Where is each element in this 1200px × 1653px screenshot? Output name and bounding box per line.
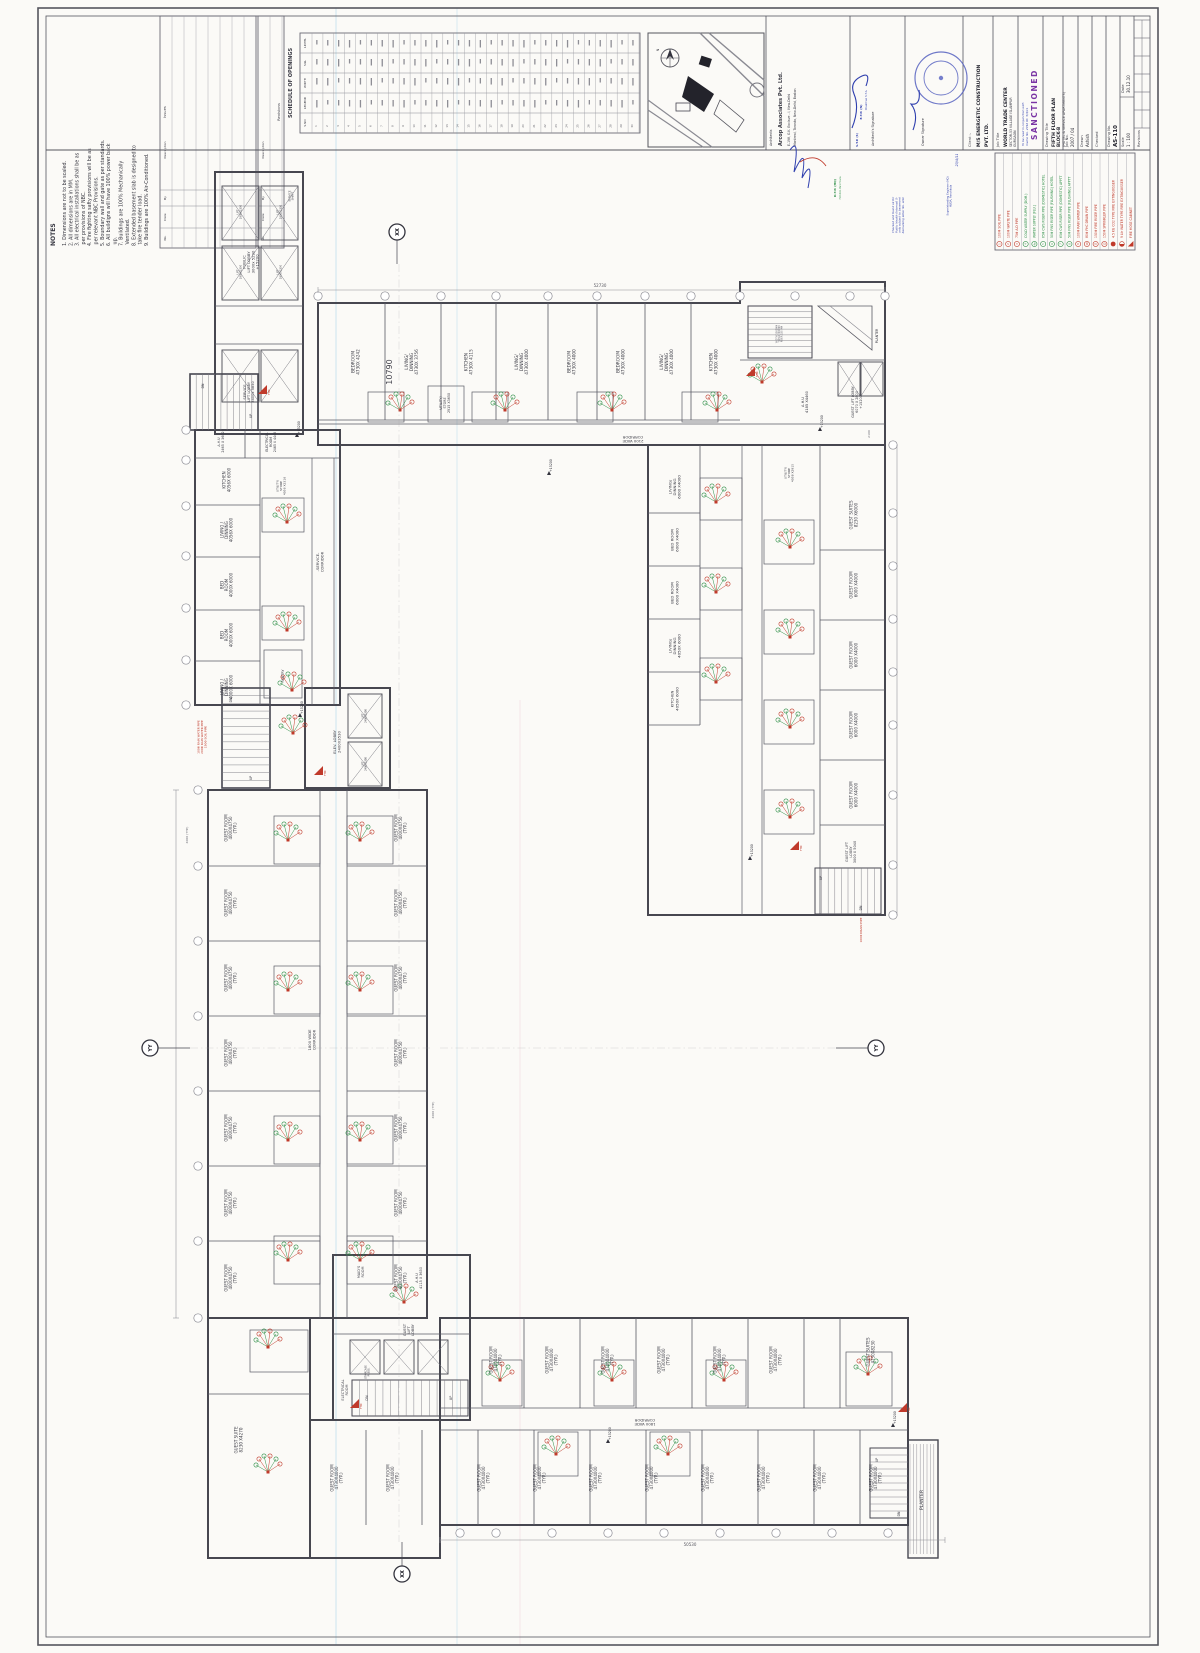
sanctioned-stamp: SANCTIONED [1030, 69, 1039, 140]
schedule-cell-mark [512, 100, 513, 106]
room-label: GUEST SUITES4730X8230 [866, 1337, 876, 1366]
schedule-cell-mark [360, 100, 361, 108]
riser-base [611, 1379, 614, 1382]
room-label: GUEST ROOM4000X4750(TYP.) [393, 1189, 407, 1217]
architects-address: E-198, G.K. Enclave - I, New-Delhi [787, 94, 791, 146]
schedule-cell-mark [534, 100, 535, 108]
grid-bubble [889, 562, 897, 570]
label-line: 6000 X4000 [677, 475, 682, 499]
note-line: Ventilated. [125, 219, 131, 246]
label-line: ROOM [345, 1385, 349, 1396]
schedule-cell-mark [567, 40, 568, 48]
fire-hose-cabinet-icon [1128, 241, 1134, 247]
schedule-cell-mark [632, 40, 633, 46]
note-line: take fire tender load. [138, 194, 144, 246]
schedule-cell-mark [436, 100, 437, 107]
lift-label: LIFT1900X2300 [236, 264, 243, 279]
schedule-cell-mark [371, 40, 372, 46]
label-line: 2465 X 4448 [273, 432, 277, 452]
label-line: 5 [358, 125, 362, 127]
label-line: 18 [499, 124, 503, 128]
riser-line [288, 674, 292, 690]
plumbing-riser-cluster [274, 1122, 302, 1142]
schedule-cell-mark [469, 59, 470, 67]
drawing-title-label: Drawing Title [1045, 122, 1049, 147]
signature-scribble [911, 90, 919, 130]
dimension-text: 52730 [594, 283, 607, 288]
riser-base [292, 732, 295, 735]
label-line: HUDA, Panchkula [949, 184, 953, 207]
schedule-cell-mark [632, 78, 633, 86]
label-line: 52730 [594, 283, 607, 288]
schedule-cell-mark [382, 100, 383, 106]
riser-base [715, 501, 718, 504]
schedule-cell-mark [480, 78, 481, 84]
riser-line [264, 1331, 268, 1347]
riser-base [789, 636, 792, 639]
schedule-cell-mark [600, 40, 601, 47]
riser-line [712, 486, 716, 502]
label-line: 8230 X6000 [853, 502, 858, 527]
section-marker-label: XX [395, 228, 401, 236]
col-header: By [163, 196, 167, 200]
schedule-cell-mark [567, 59, 568, 64]
legend-number: 7 [1060, 243, 1063, 245]
schedule-cell-mark [589, 78, 590, 86]
schedule-row-no: 11 [423, 124, 427, 128]
section-marker-label: XX [400, 1570, 406, 1578]
schedule-cell-mark [512, 40, 513, 47]
schedule-cell-mark [469, 40, 470, 47]
schedule-cell-mark [491, 78, 492, 85]
se-stamp: Superintending Engineer (HQ)HUDA, Panchk… [945, 176, 952, 215]
schedule-cell-mark [382, 59, 383, 67]
riser-line [713, 394, 717, 410]
plumbing-riser-cluster [346, 972, 374, 992]
riser-line [664, 1438, 668, 1454]
room-label: GUEST ROOM4000X4750(TYP.) [223, 1189, 237, 1217]
room-label: LIVING/DINNING4730X 4000 [514, 349, 529, 375]
schedule-cell-mark [480, 40, 481, 48]
label-line: N [656, 48, 660, 51]
bathroom [700, 478, 742, 520]
schedule-row-no: 26 [587, 124, 591, 128]
plumbing-riser-cluster [346, 1122, 374, 1142]
label-line: 4730X 4000 [571, 349, 576, 375]
col-header: No. [163, 235, 167, 240]
schedule-cell-mark [382, 40, 383, 47]
bathroom [682, 392, 718, 422]
label-line: 12 [434, 124, 438, 128]
label-line: DN [859, 905, 863, 910]
label-line: 1900X2300 [278, 264, 282, 279]
label-line: NOTES [50, 223, 57, 246]
schedule-cell-mark [349, 40, 350, 48]
label-line: 2 [1007, 243, 1010, 245]
grid-bubble [456, 1529, 464, 1537]
schedule-cell-mark [611, 40, 612, 48]
client-name-2: PVT. LTD. [984, 123, 990, 147]
label-line: 6000 X4000 [674, 581, 679, 605]
room-label: GUEST ROOM4000X4750(TYP.) [393, 889, 407, 917]
riser-line [356, 974, 360, 990]
label-line: XX [400, 1570, 406, 1578]
stair-direction: DN [859, 905, 863, 910]
legend-text: 100Φ WASTE PIPE [1006, 210, 1010, 238]
label-line: 75Φ A.D PIPE [1015, 218, 1019, 238]
riser-base [555, 1453, 558, 1456]
label-line: 3000 X 5040 [853, 841, 857, 863]
schedule-row-no: 29 [619, 124, 623, 128]
label-line: 5 [1042, 243, 1045, 245]
riser-base [287, 1259, 290, 1262]
schedule-row-no: 17 [488, 124, 492, 128]
building-footprint [682, 76, 714, 112]
schedule-cell-mark [632, 59, 633, 66]
label-line: (TYP.) [598, 1472, 603, 1484]
schedule-cell-mark [414, 78, 415, 86]
road-line [709, 33, 764, 80]
revisions-label: Revisions [1137, 130, 1141, 147]
legend-text: WATER SUPPLY (FLU.) [1033, 205, 1037, 238]
schedule-cell-mark [338, 100, 339, 106]
drawn-label: Drawn [1080, 135, 1084, 147]
room-label: GUEST ROOM4000X4750(TYP.) [393, 1114, 407, 1142]
room-label: LIVING /DINNING4056X 6000 [219, 517, 233, 542]
label-line: UP [875, 1458, 879, 1462]
note-line: 2. All dimensions are in MM. [68, 179, 74, 246]
plumbing-riser-cluster [654, 1436, 682, 1456]
schedule-cell-mark [589, 40, 590, 46]
label-line: 20 [521, 124, 525, 128]
stair-direction: UP [249, 414, 253, 418]
lift-label: LIFT2400X2300 [362, 757, 368, 771]
stair-direction: UP [249, 776, 253, 780]
note-line: 5. Boundary wall and gate as per standar… [100, 140, 106, 246]
label-line: UP [249, 776, 253, 780]
riser-base [761, 381, 764, 384]
room-label: KITCHEN4050X 6000 [670, 687, 680, 711]
label-line: (TYP.) [498, 1354, 503, 1366]
room-label: GUEST ROOM4730X4000(TYP.) [544, 1346, 558, 1374]
stair-direction: UP [819, 876, 823, 880]
label-line: +15200 [608, 1427, 612, 1440]
stair-direction: UP [875, 1458, 879, 1462]
fhc-label: FHC [323, 770, 327, 776]
planter-wedge [818, 306, 872, 350]
legend-text: FIRE HOSE CABINET [1129, 207, 1133, 238]
plumbing-riser-cluster [776, 799, 804, 819]
section-marker-label: YY [874, 1044, 880, 1053]
dimension-text: 4000 (TYP.) [431, 1102, 435, 1119]
label-line: 65Φ CWS RISER PIPE (DOMESTIC) HOTEL [1041, 174, 1045, 238]
schedule-cell-mark [327, 78, 328, 86]
label-line: 4000X 6000 [229, 674, 234, 699]
road-line [648, 110, 703, 147]
riser-line [712, 666, 716, 682]
riser-base [867, 1373, 870, 1376]
schedule-cell-mark [349, 78, 350, 84]
riser-point [254, 1338, 258, 1342]
schedule-cell-mark [578, 100, 579, 108]
label-line: 2 [325, 125, 329, 127]
label-line: Remarking letter No. attd. [901, 197, 905, 234]
grid-bubble [544, 292, 552, 300]
schedule-row-no: 19 [510, 124, 514, 128]
schedule-cell-mark [578, 40, 579, 45]
plumbing-riser-cluster [776, 619, 804, 639]
label-line: +15200 [549, 459, 553, 472]
scale-value: 1 : 100 [1126, 132, 1131, 147]
label-line: +15200 [300, 701, 304, 714]
grid-bubble [182, 456, 190, 464]
room-label: BED ROOM6000 X4000 [670, 581, 680, 605]
schedule-cell-mark [425, 78, 426, 83]
schedule-cell-mark [436, 40, 437, 48]
checked-note: Checked and found ok forPublic Health (I… [891, 196, 905, 233]
etp-stamp: E.T.P. (N) [859, 104, 863, 120]
legend-text: COLD WATER SUPPLY (DOM.) [1024, 194, 1028, 238]
room-label: GUEST ROOM4730X4000(TYP.) [768, 1346, 782, 1374]
room-label: STAIRCASEPRESS. [364, 1365, 371, 1379]
label-line: 4730X 4000 [620, 349, 625, 375]
plumbing-riser-cluster [776, 709, 804, 729]
schedule-cell-mark [578, 59, 579, 65]
grid-bubble [194, 862, 202, 870]
label-line: 4056X 6000 [226, 467, 231, 492]
room-label: GUEST ROOM4730X4000(TYP.) [812, 1464, 826, 1492]
lift-label: LIFT2400X2300 [362, 709, 368, 723]
label-line: 27 [597, 124, 601, 128]
grid-bubble [889, 509, 897, 517]
plumbing-riser-cluster [279, 715, 307, 735]
label-line: (TYP.) [822, 1472, 827, 1484]
label-line: 4185 X4460 [805, 390, 809, 413]
riser-line [786, 531, 790, 547]
schedule-cell-mark [469, 100, 470, 106]
note-line: up. [113, 237, 118, 246]
label-line: 10 [1086, 242, 1089, 246]
key-plan: N [648, 33, 764, 147]
schedule-cell-mark [502, 59, 503, 66]
bathroom [700, 568, 742, 610]
grid-bubble [716, 1529, 724, 1537]
schedule-cell-mark [447, 59, 448, 65]
fire-hose-cabinet-icon [790, 841, 799, 850]
job-no-label: Job No. [1065, 134, 1069, 148]
label-line: 9 Ltr WATER TYPE FIRE EXTINGUISSER [1120, 178, 1124, 238]
schedule-cell-mark [523, 100, 524, 107]
room-label: GUEST ROOM4730X4000(TYP.) [700, 1464, 714, 1492]
label-line: (TYP.) [233, 897, 238, 909]
schedule-cell-mark [338, 59, 339, 67]
riser-base [286, 521, 289, 524]
label-line: H.U.D.A. Panchkula [839, 176, 842, 199]
schedule-cell-mark [458, 40, 459, 46]
lift-shaft-x [418, 1340, 448, 1374]
architects-name: Arcop Associates Pvt. Ltd. [778, 72, 784, 146]
label-line: 4000X 6000 [229, 572, 234, 597]
bathroom [700, 658, 742, 700]
label-line: 4000 (TYP.) [185, 827, 189, 844]
chairman-stamp: Chairman S.T.A. [864, 90, 868, 111]
label-line: (TYP.) [710, 1472, 715, 1484]
schedule-cell-mark [447, 78, 448, 85]
grid-bubble [884, 1529, 892, 1537]
riser-line [552, 1438, 556, 1454]
riser-base [267, 1346, 270, 1349]
room-label: GUEST ROOM4730X4000(TYP.) [488, 1346, 502, 1374]
riser-line [356, 1124, 360, 1140]
schedule-cell-mark [545, 59, 546, 66]
label-line: 22 [543, 124, 547, 128]
label-line: (TYP.) [403, 1122, 408, 1134]
label-line: +15200 [750, 844, 754, 857]
grid-bubble [881, 292, 889, 300]
label-line: 6 [1051, 243, 1054, 245]
label-line: 4056 X3316 [283, 477, 287, 495]
schedule-cell-mark [589, 59, 590, 66]
label-line: (TYP.) [878, 1472, 883, 1484]
schedule-cell-mark [491, 100, 492, 108]
schedule-cell-mark [425, 59, 426, 67]
fhc-label: FHC [907, 1407, 911, 1413]
room-label: KITCHEN4730X 4115 [464, 349, 474, 375]
label-line: (TYP.) [778, 1354, 783, 1366]
label-line: 6 [369, 125, 373, 127]
grid-bubble [194, 1237, 202, 1245]
schedule-row-no: 28 [608, 124, 612, 128]
plumbing-riser-cluster [346, 1242, 374, 1262]
legend-text: 75Φ A.D PIPE [1015, 218, 1019, 238]
grid-bubble [660, 1529, 668, 1537]
label-line: Chairman S.T.A. [864, 90, 868, 111]
planter-hatch [830, 306, 872, 340]
riser-line [284, 1124, 288, 1140]
riser-line [264, 1456, 268, 1472]
lobby-label: GUEST LIFTLOBBY3000 X 5040 [845, 841, 857, 863]
label-line: 2400X2300 [364, 709, 367, 723]
riser-line [396, 394, 400, 410]
grid-bubble [889, 911, 897, 919]
label-line: +15200 [297, 421, 301, 434]
client-name: M/S ENERGETIC CONSTRUCTION [976, 65, 982, 147]
schedule-row-no: 18 [499, 124, 503, 128]
label-line: PLANTER [875, 328, 879, 343]
check-scribble [790, 146, 810, 188]
bathroom [274, 1116, 320, 1164]
legend-number: 6 [1051, 243, 1054, 245]
room-label: GUEST ROOM4730X4000(TYP.) [656, 1346, 670, 1374]
schedule-cell-mark [327, 59, 328, 66]
grid-bubble [381, 292, 389, 300]
grid-bubble [889, 615, 897, 623]
note-line: 7. Buildings are 100% Mechanically [119, 161, 125, 246]
note-line: 1. Dimensions are not to be scaled. [62, 161, 68, 246]
schedule-row-no: 25 [576, 124, 580, 128]
label-line: LINTEL [303, 38, 307, 48]
label-line: WATER SUPPLY (FLU.) [1033, 205, 1037, 238]
scale-label: Scale [1121, 137, 1125, 147]
label-line: 3 [1016, 243, 1019, 245]
room-label: GUEST ROOM4730X4000(TYP.) [868, 1464, 882, 1492]
schedule-cell-mark [393, 78, 394, 84]
riser-base [667, 1453, 670, 1456]
label-line: 80Φ FHC DRAIN PIPE [1085, 206, 1089, 238]
room-label: ELECTRICALROOM [341, 1379, 349, 1400]
room-label: BEDROOM4730X 4000 [567, 349, 577, 375]
label-line: SILL [303, 60, 307, 66]
schedule-row-no: 14 [456, 124, 460, 128]
schedule-cell-mark [393, 40, 394, 48]
label-line: DN [229, 697, 233, 702]
room-label: BED ROOM6000 X4000 [670, 528, 680, 552]
legend-text: 50Φ FWS RISER PIPE (FLUSHING) HOTEL [1050, 176, 1054, 238]
suite-block-outline [208, 1318, 310, 1558]
job-no: 2007 / 04 [1070, 127, 1075, 147]
room-label: LIVING/DINNING4730X 4000 [659, 349, 674, 375]
schedule-cell-mark [621, 78, 622, 85]
pipe-annotation: 100Φ DRAIN PIPE [859, 917, 863, 942]
schedule-cell-mark [523, 59, 524, 64]
schedule-cell-mark [523, 78, 524, 84]
legend-text: 65Φ CWS RISER PIPE (DOMESTIC) APPTT [1059, 175, 1063, 238]
atp-stamp-2: H.U.D.A. Panchkula [839, 176, 842, 199]
room-label: GUEST ROOM4730X4000(TYP.) [329, 1464, 343, 1492]
legend-text: 80Φ FHC DRAIN PIPE [1085, 206, 1089, 238]
schedule-cell-mark [371, 59, 372, 66]
riser-line [283, 506, 287, 522]
schedule-cell-mark [382, 78, 383, 83]
schedule-cell-mark [491, 40, 492, 45]
label-line: 14 [456, 124, 460, 128]
label-line: 4730X 4000 [713, 349, 718, 375]
grid-bubble [182, 502, 190, 510]
level-marker: +15200 [893, 1411, 897, 1424]
label-line: (TYP.) [486, 1472, 491, 1484]
label-line: 25 [576, 124, 580, 128]
label-line: 17 [488, 124, 492, 128]
dimension-text: 2100 [867, 430, 871, 438]
checked-label: Checked [1095, 132, 1099, 147]
label-line: 4115 X 3630 [419, 1267, 423, 1289]
grid-bubble [889, 721, 897, 729]
legend-text: 100Φ SOIL PIPE [998, 214, 1002, 238]
site-block [714, 100, 744, 132]
riser-base [789, 546, 792, 549]
fire-hose-cabinet-icon [898, 1403, 907, 1412]
riser-base [287, 839, 290, 842]
schedule-cell-mark [512, 78, 513, 83]
grid-bubble [437, 292, 445, 300]
label-line: 4730X8230 [870, 1340, 875, 1364]
schedule-cell-mark [360, 59, 361, 65]
schedule-cell-mark [316, 100, 317, 108]
label-line: 16 [478, 124, 482, 128]
schedule-row-no: 21 [532, 124, 536, 128]
dimension-text: 4000 (TYP.) [185, 827, 189, 844]
level-marker: +15200 [297, 421, 301, 434]
legend-text: 100Φ RAIN WATER PIPE [1076, 202, 1080, 238]
label-line: 8 [390, 125, 394, 127]
riser-line [284, 824, 288, 840]
label-line: CORRIDOR [622, 435, 643, 440]
schedule-cell-mark [360, 40, 361, 45]
label-line: (TYP.) [403, 1272, 408, 1284]
room-label: MAID'SROOM [357, 1265, 365, 1278]
room-label: GUEST ROOM4730X4000(TYP.) [756, 1464, 770, 1492]
riser-base [716, 409, 719, 412]
